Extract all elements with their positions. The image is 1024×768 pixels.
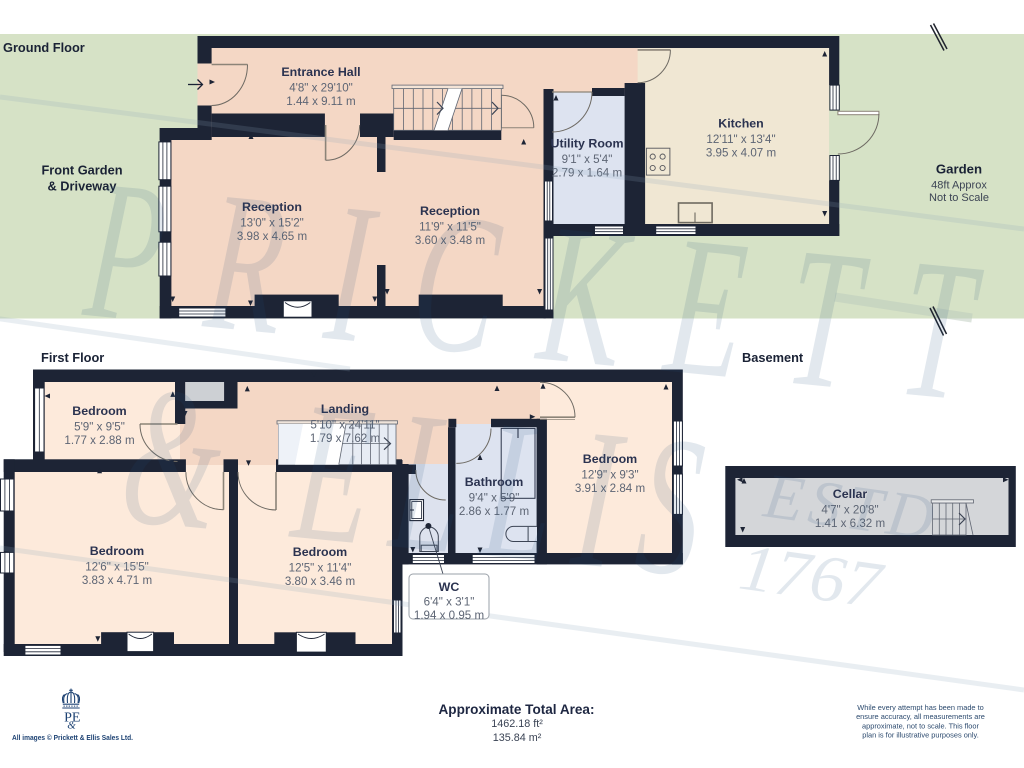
svg-text:Bedroom: Bedroom xyxy=(72,404,126,418)
svg-text:135.84 m²: 135.84 m² xyxy=(493,732,542,744)
svg-text:1.44 x 9.11 m: 1.44 x 9.11 m xyxy=(286,95,355,108)
svg-text:Not to Scale: Not to Scale xyxy=(929,192,989,204)
svg-text:WC: WC xyxy=(439,580,460,594)
svg-text:48ft Approx: 48ft Approx xyxy=(931,180,987,192)
svg-text:5'9" x 9'5": 5'9" x 9'5" xyxy=(74,421,125,434)
svg-text:Garden: Garden xyxy=(936,162,982,177)
svg-text:Utility Room: Utility Room xyxy=(551,137,624,151)
svg-text:1462.18 ft²: 1462.18 ft² xyxy=(491,718,543,730)
svg-text:While every attempt has been m: While every attempt has been made to xyxy=(857,703,984,712)
svg-text:12'11" x 13'4": 12'11" x 13'4" xyxy=(706,133,775,146)
svg-text:6'4" x 3'1": 6'4" x 3'1" xyxy=(424,596,475,609)
svg-text:Approximate Total Area:: Approximate Total Area: xyxy=(439,701,595,717)
svg-text:Ground Floor: Ground Floor xyxy=(3,40,85,55)
svg-text:Entrance Hall: Entrance Hall xyxy=(281,65,360,79)
svg-text:3.83 x 4.71 m: 3.83 x 4.71 m xyxy=(82,574,152,587)
svg-text:9'1" x 5'4": 9'1" x 5'4" xyxy=(562,153,613,166)
svg-text:ensure accuracy, all measureme: ensure accuracy, all measurements are xyxy=(856,712,985,721)
svg-text:4'8" x 29'10": 4'8" x 29'10" xyxy=(289,82,353,95)
svg-text:approximate, not to scale. Thi: approximate, not to scale. This floor xyxy=(862,721,979,730)
svg-text:1.94 x 0.95 m: 1.94 x 0.95 m xyxy=(414,609,484,622)
svg-text:plan is for illustrative purpo: plan is for illustrative purposes only. xyxy=(862,731,979,740)
svg-text:Kitchen: Kitchen xyxy=(718,117,763,131)
svg-text:3.95 x 4.07 m: 3.95 x 4.07 m xyxy=(706,147,776,160)
svg-text:All images © Prickett & Ellis: All images © Prickett & Ellis Sales Ltd. xyxy=(12,733,133,742)
svg-text:1.77 x 2.88 m: 1.77 x 2.88 m xyxy=(64,434,134,447)
svg-text:&: & xyxy=(67,720,76,732)
